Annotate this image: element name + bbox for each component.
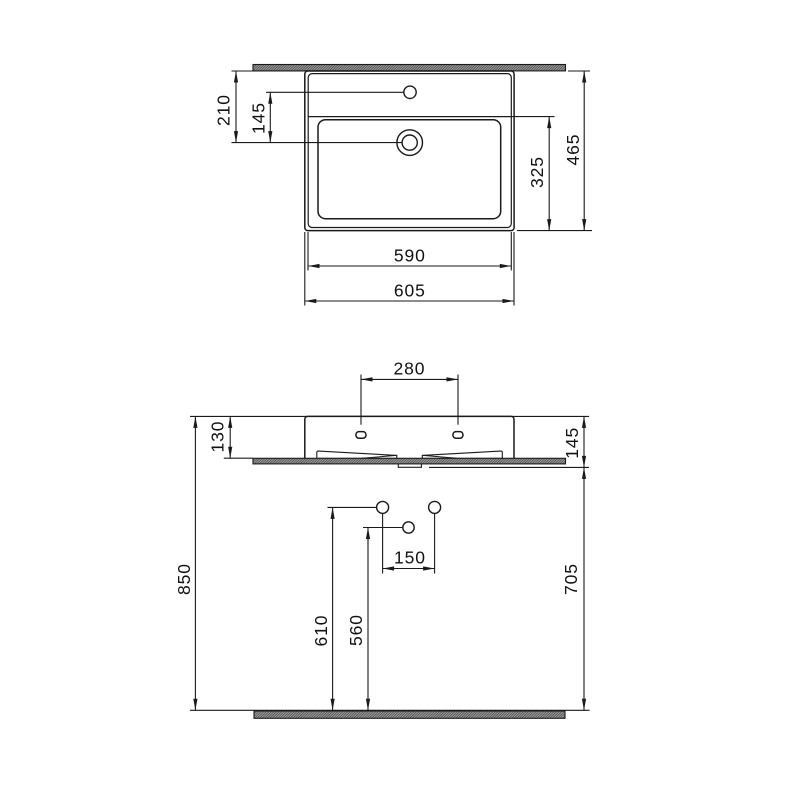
svg-text:605: 605: [394, 280, 426, 300]
svg-text:145: 145: [562, 427, 582, 459]
svg-text:705: 705: [561, 563, 581, 595]
svg-text:610: 610: [311, 615, 331, 647]
svg-text:465: 465: [563, 134, 583, 166]
svg-text:145: 145: [249, 102, 269, 134]
svg-text:210: 210: [214, 94, 234, 126]
svg-text:280: 280: [394, 358, 426, 378]
svg-text:590: 590: [394, 245, 426, 265]
svg-text:130: 130: [208, 421, 228, 453]
svg-text:850: 850: [174, 563, 194, 595]
svg-text:325: 325: [527, 156, 547, 188]
svg-text:150: 150: [394, 548, 426, 568]
svg-text:560: 560: [346, 614, 366, 646]
